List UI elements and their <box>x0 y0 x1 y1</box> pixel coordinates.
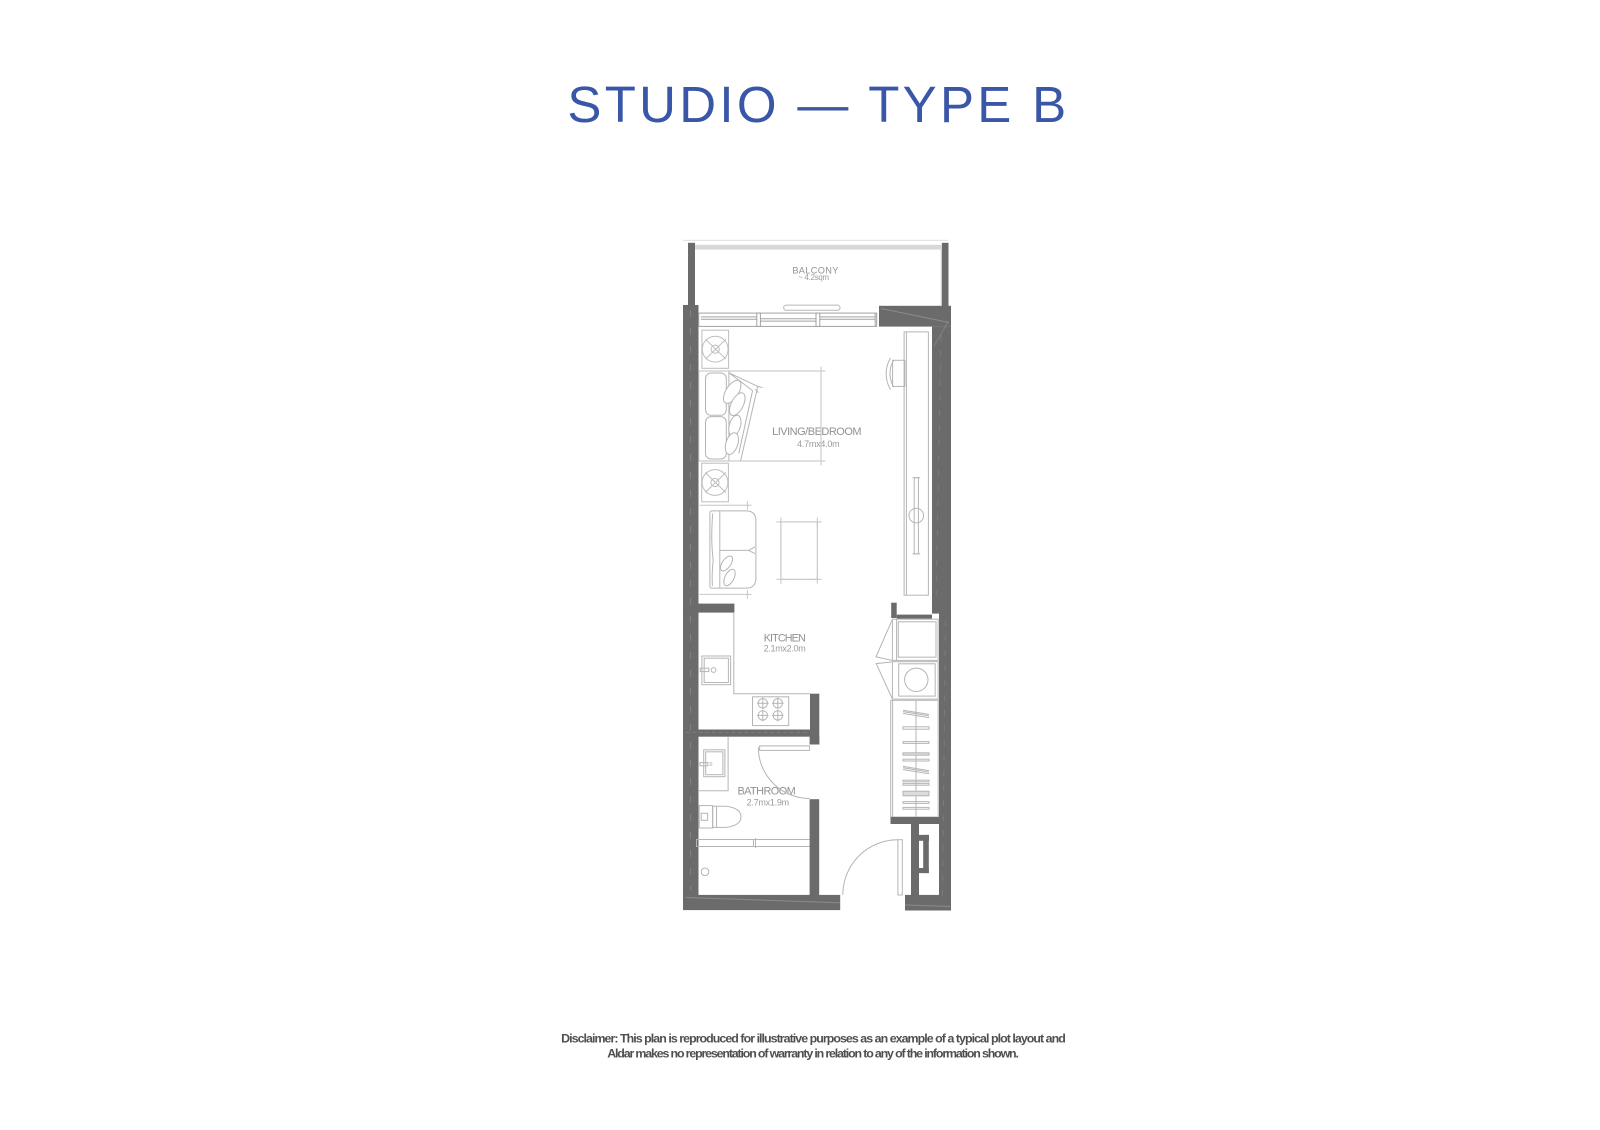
svg-text:KITCHEN: KITCHEN <box>764 632 805 644</box>
svg-text:~ 4.2sqm: ~ 4.2sqm <box>798 273 829 282</box>
svg-text:4.7mx4.0m: 4.7mx4.0m <box>797 439 839 449</box>
svg-text:2.7mx1.9m: 2.7mx1.9m <box>747 797 789 807</box>
svg-text:Disclaimer: This plan is repro: Disclaimer: This plan is reproduced for … <box>561 1032 1065 1046</box>
svg-text:2.1mx2.0m: 2.1mx2.0m <box>764 644 806 654</box>
svg-text:Aldar makes no representation: Aldar makes no representation of warrant… <box>607 1046 1018 1060</box>
svg-text:LIVING/BEDROOM: LIVING/BEDROOM <box>772 426 861 438</box>
svg-text:STUDIO — TYPE B: STUDIO — TYPE B <box>567 76 1069 133</box>
svg-text:BATHROOM: BATHROOM <box>737 786 795 798</box>
